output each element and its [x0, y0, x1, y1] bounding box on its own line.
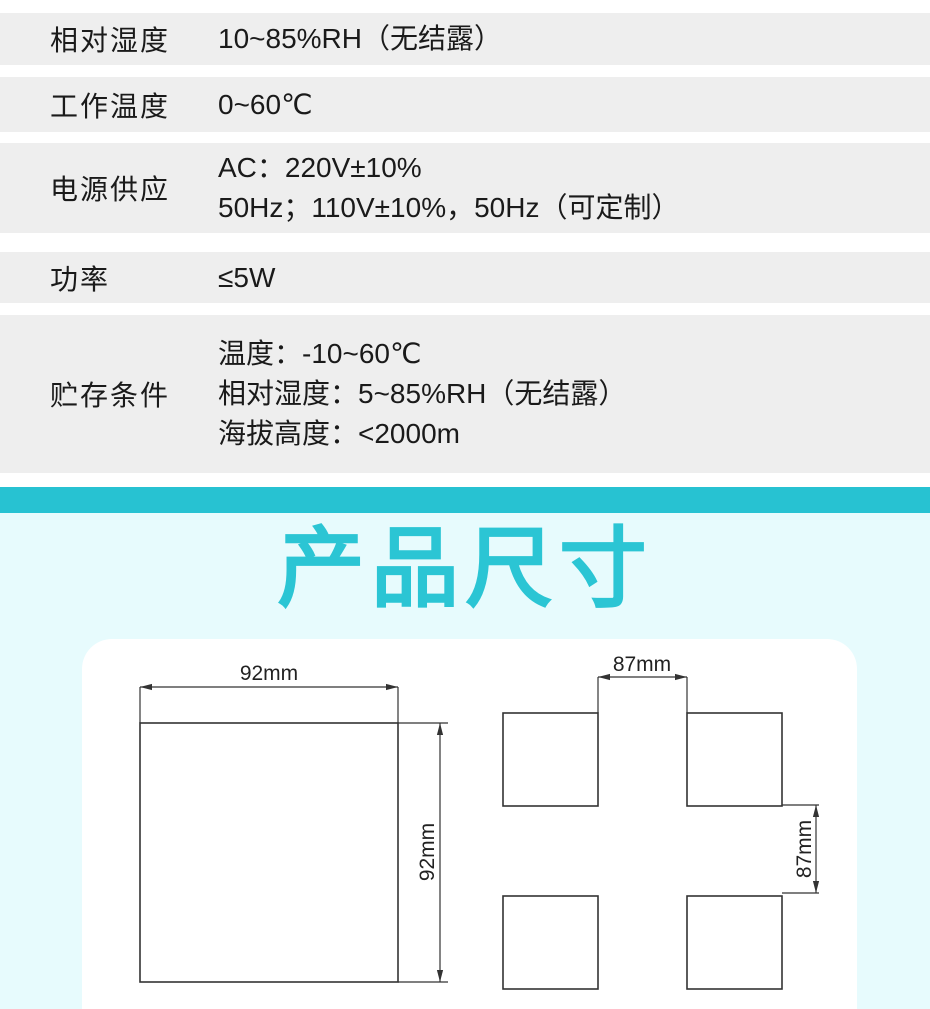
spec-value: 10~85%RH（无结露） — [218, 19, 502, 59]
front-height-dim-label: 92mm — [416, 823, 439, 881]
spec-value-line: AC：220V±10% — [218, 148, 679, 188]
cutout-view-drawing — [503, 713, 782, 989]
spec-label: 功率 — [50, 258, 218, 298]
front-panel-outline — [140, 723, 398, 982]
spec-value-line: 10~85%RH（无结露） — [218, 19, 502, 59]
cutout-corner-bottom-right — [687, 896, 782, 989]
spec-label: 相对湿度 — [50, 19, 218, 59]
accent-divider-bar — [0, 487, 930, 513]
spec-value-line: 0~60℃ — [218, 85, 313, 125]
spec-value: AC：220V±10% 50Hz；110V±10%，50Hz（可定制） — [218, 148, 679, 228]
spec-label: 工作温度 — [50, 85, 218, 125]
cutout-width-dim-label: 87mm — [613, 653, 671, 676]
spec-value: 0~60℃ — [218, 85, 313, 125]
front-width-dim-label: 92mm — [240, 662, 298, 685]
spec-value: 温度：-10~60℃ 相对湿度：5~85%RH（无结露） 海拔高度：<2000m — [218, 334, 626, 454]
spec-row-working-temp: 工作温度 0~60℃ — [0, 77, 930, 132]
spec-row-storage: 贮存条件 温度：-10~60℃ 相对湿度：5~85%RH（无结露） 海拔高度：<… — [0, 315, 930, 473]
cutout-height-dim-label: 87mm — [793, 820, 816, 878]
spec-value-line: 50Hz；110V±10%，50Hz（可定制） — [218, 188, 679, 228]
spec-value-line: ≤5W — [218, 258, 275, 298]
cutout-corner-bottom-left — [503, 896, 598, 989]
section-title: 产品尺寸 — [0, 511, 930, 626]
cutout-corner-top-left — [503, 713, 598, 806]
spec-label: 电源供应 — [50, 168, 218, 208]
dimension-drawings: 92mm 92mm 87mm 87mm — [82, 639, 857, 1009]
spec-value: ≤5W — [218, 258, 275, 298]
spec-row-power-supply: 电源供应 AC：220V±10% 50Hz；110V±10%，50Hz（可定制） — [0, 143, 930, 233]
spec-row-power: 功率 ≤5W — [0, 252, 930, 303]
spec-value-line: 温度：-10~60℃ — [218, 334, 626, 374]
dimensions-card: 92mm 92mm 87mm 87mm — [82, 639, 857, 1009]
spec-label: 贮存条件 — [50, 374, 218, 414]
cutout-corner-top-right — [687, 713, 782, 806]
spec-row-humidity: 相对湿度 10~85%RH（无结露） — [0, 13, 930, 65]
spec-value-line: 相对湿度：5~85%RH（无结露） — [218, 374, 626, 414]
spec-value-line: 海拔高度：<2000m — [218, 414, 626, 454]
front-view-drawing — [140, 687, 448, 982]
